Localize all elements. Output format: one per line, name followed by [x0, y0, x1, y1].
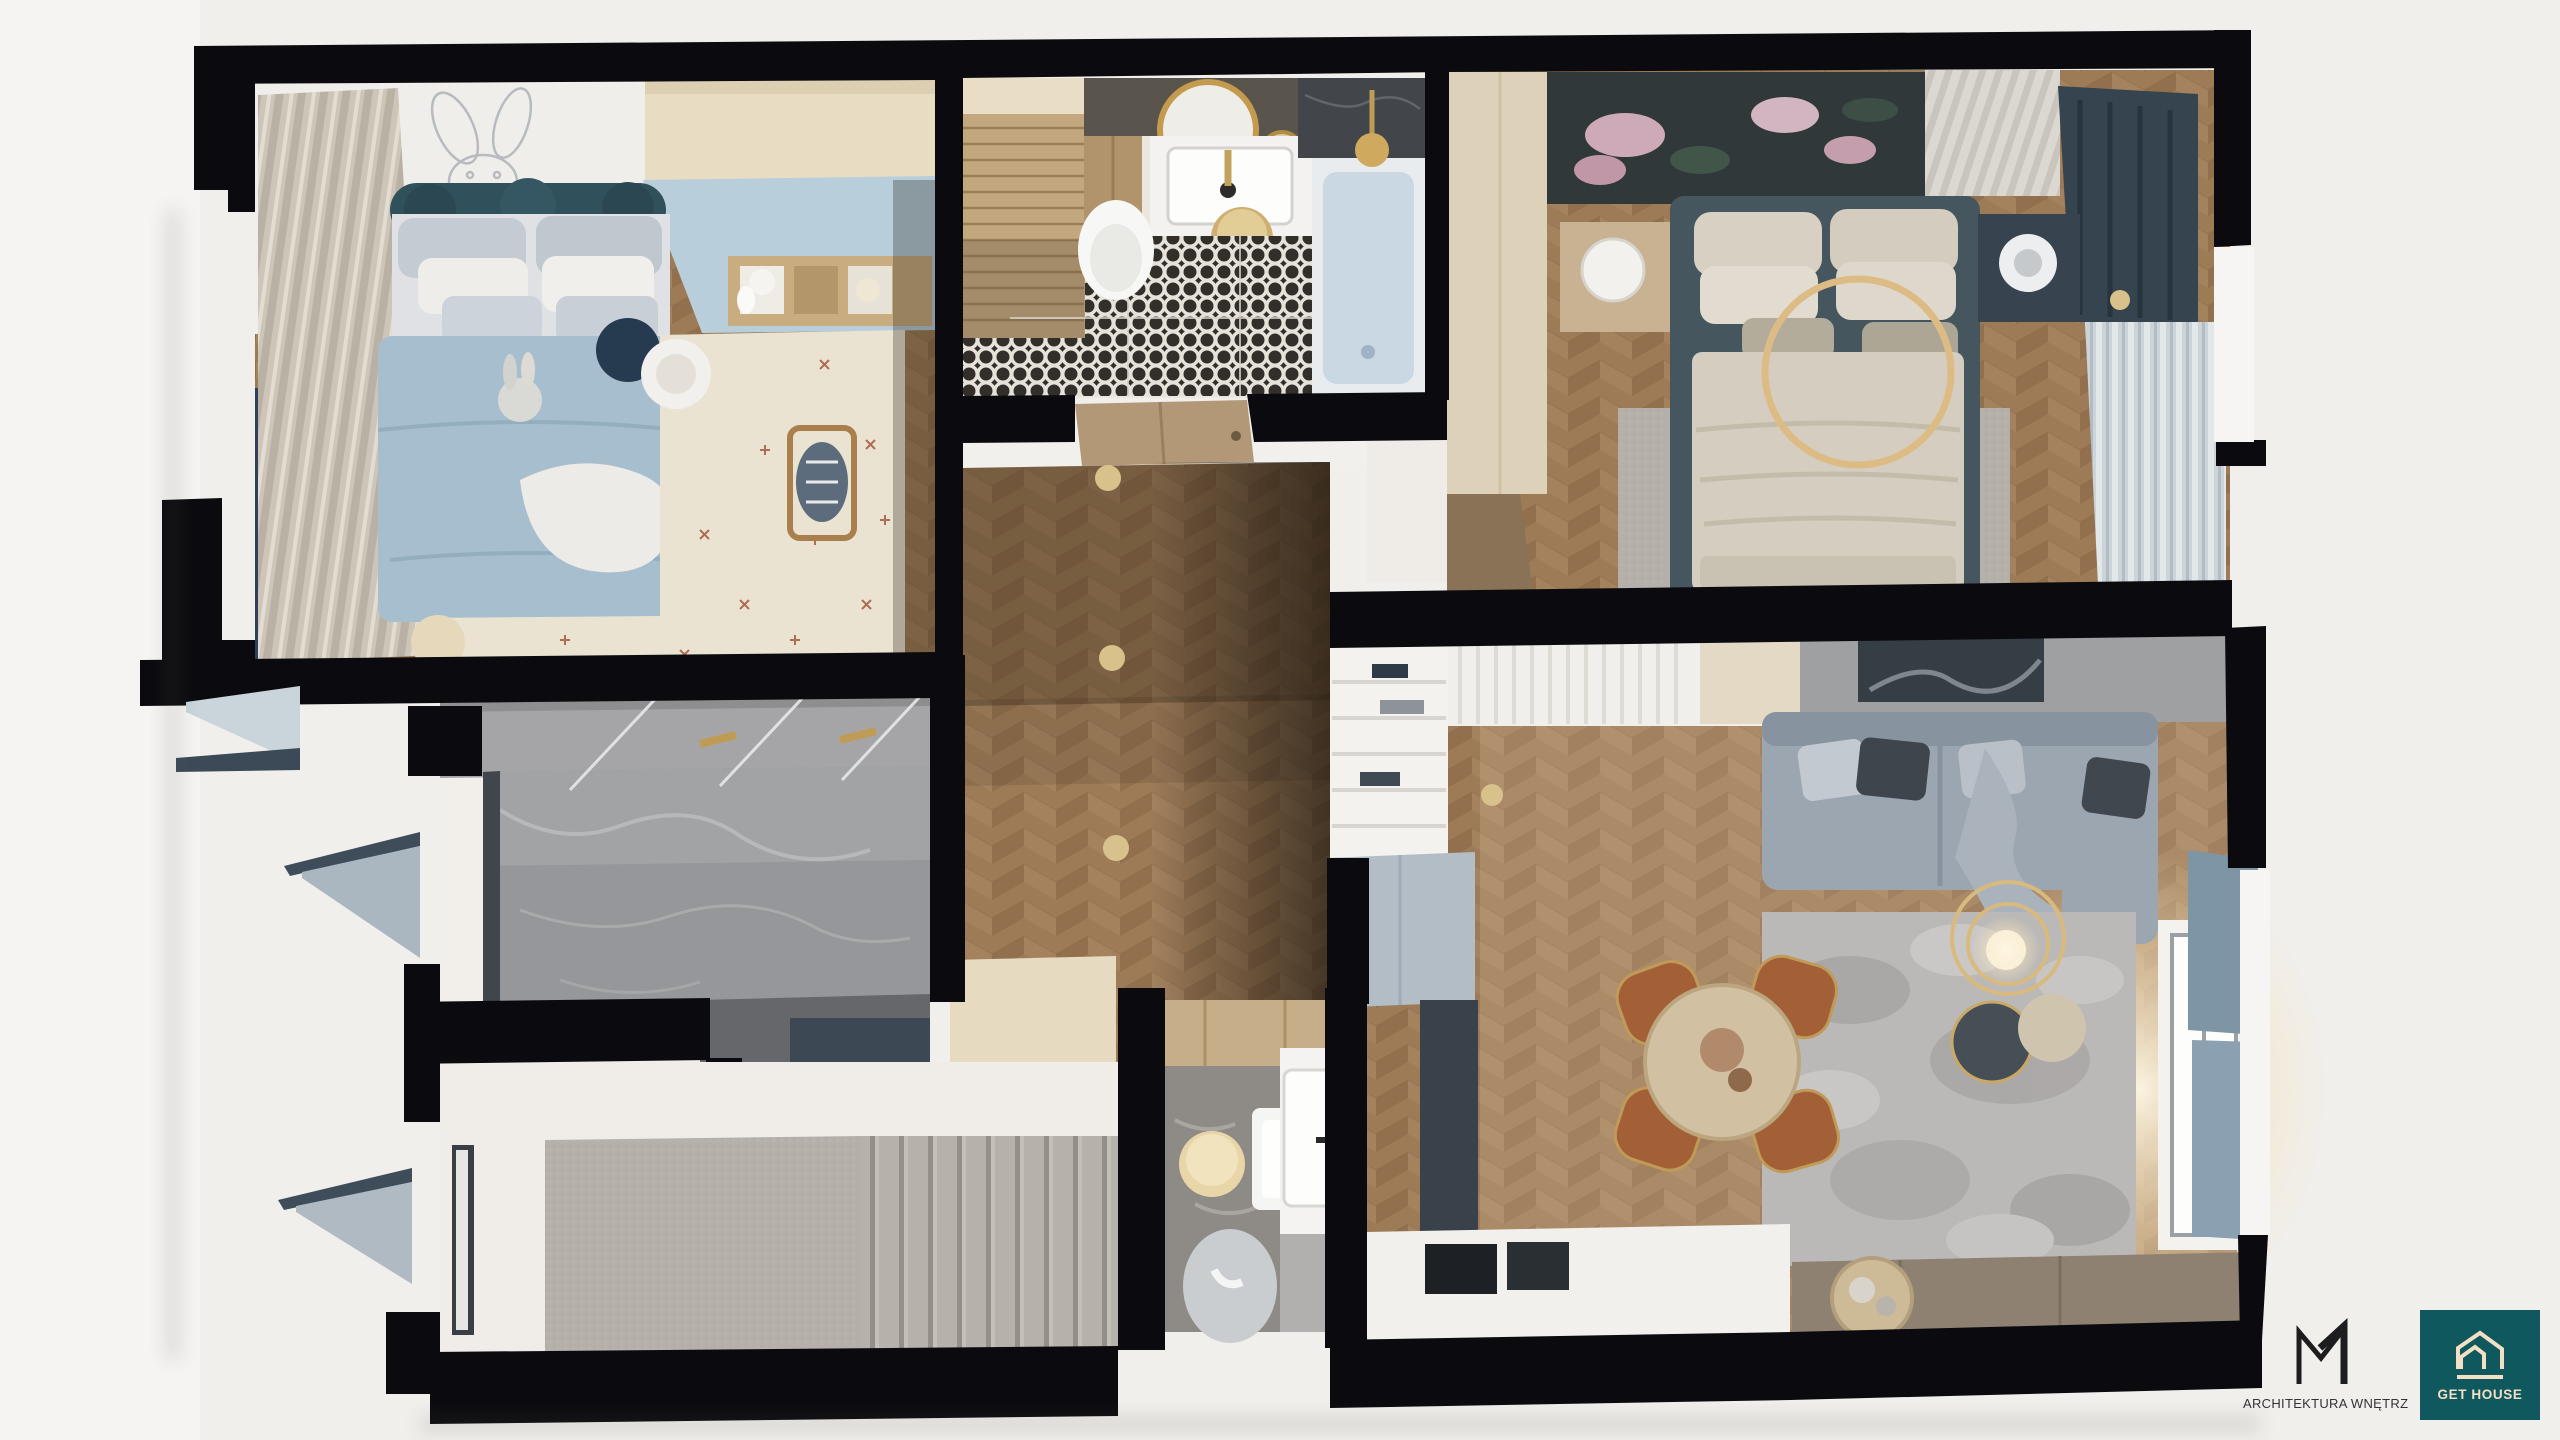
svg-text:ARCHITEKTURA WNĘTRZ: ARCHITEKTURA WNĘTRZ	[2243, 1396, 2408, 1411]
svg-text:GET HOUSE: GET HOUSE	[2438, 1387, 2523, 1402]
